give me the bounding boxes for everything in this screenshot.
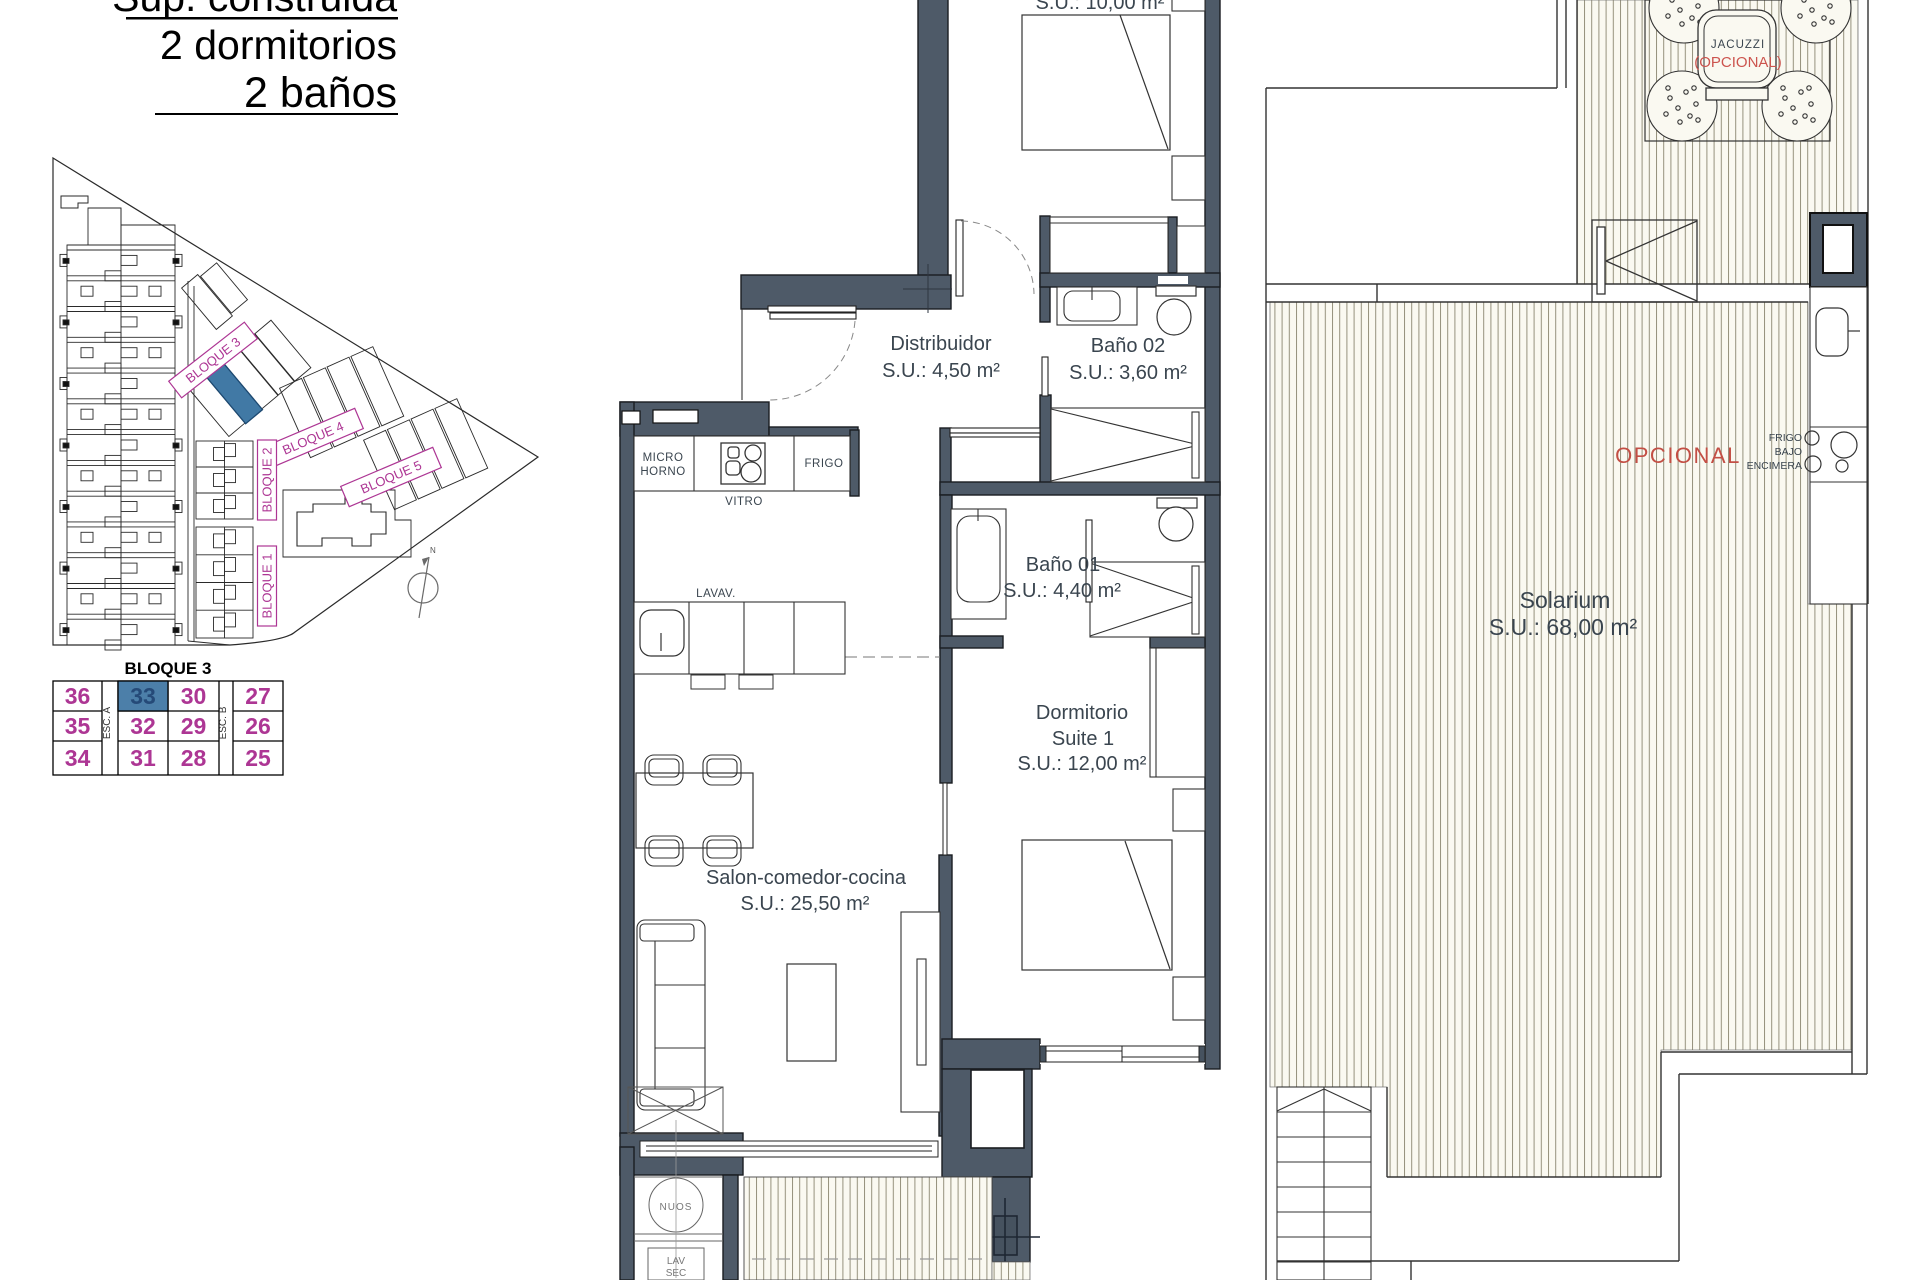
svg-text:BLOQUE 1: BLOQUE 1 — [260, 553, 275, 618]
svg-text:29: 29 — [181, 713, 207, 739]
svg-text:S.U.: 68,00 m²: S.U.: 68,00 m² — [1489, 614, 1638, 640]
svg-text:LAVAV.: LAVAV. — [696, 588, 736, 600]
svg-text:34: 34 — [65, 745, 91, 771]
svg-text:(OPCIONAL): (OPCIONAL) — [1694, 54, 1782, 71]
svg-text:JACUZZI: JACUZZI — [1711, 39, 1765, 51]
svg-text:25: 25 — [245, 745, 271, 771]
svg-text:26: 26 — [245, 713, 271, 739]
svg-text:ESC. B: ESC. B — [218, 706, 229, 739]
svg-text:FRIGO: FRIGO — [805, 458, 844, 470]
svg-text:Baño 01: Baño 01 — [1026, 554, 1101, 576]
svg-text:Solarium: Solarium — [1520, 587, 1611, 613]
svg-text:31: 31 — [130, 745, 156, 771]
svg-text:S.U.: 4,40 m²: S.U.: 4,40 m² — [1003, 580, 1121, 602]
svg-text:Salon-comedor-cocina: Salon-comedor-cocina — [706, 867, 907, 889]
svg-text:FRIGO: FRIGO — [1769, 432, 1802, 444]
svg-text:28: 28 — [181, 745, 207, 771]
svg-text:N: N — [430, 546, 436, 555]
svg-text:32: 32 — [130, 713, 156, 739]
svg-text:BAJO: BAJO — [1775, 446, 1802, 458]
svg-text:S.U.: 10,00 m²: S.U.: 10,00 m² — [1036, 0, 1165, 14]
svg-text:Distribuidor: Distribuidor — [890, 333, 991, 355]
svg-text:Dormitorio: Dormitorio — [1036, 702, 1128, 724]
svg-text:Suite 1: Suite 1 — [1052, 728, 1114, 750]
svg-text:S.U.: 12,00 m²: S.U.: 12,00 m² — [1018, 753, 1147, 775]
svg-text:36: 36 — [65, 683, 91, 709]
svg-text:BLOQUE 2: BLOQUE 2 — [260, 447, 275, 512]
svg-text:2 dormitorios: 2 dormitorios — [160, 22, 397, 68]
svg-text:HORNO: HORNO — [640, 466, 685, 478]
svg-text:S.U.: 3,60 m²: S.U.: 3,60 m² — [1069, 362, 1187, 384]
svg-text:33: 33 — [130, 683, 156, 709]
svg-text:2 baños: 2 baños — [244, 69, 397, 117]
svg-text:BLOQUE 3: BLOQUE 3 — [125, 659, 212, 678]
svg-text:30: 30 — [181, 683, 207, 709]
svg-text:MICRO: MICRO — [643, 452, 684, 464]
svg-text:ESC. A: ESC. A — [102, 707, 113, 740]
svg-text:27: 27 — [245, 683, 271, 709]
svg-text:ENCIMERA: ENCIMERA — [1747, 460, 1802, 472]
svg-text:35: 35 — [65, 713, 91, 739]
svg-text:OPCIONAL: OPCIONAL — [1615, 443, 1741, 468]
svg-text:VITRO: VITRO — [725, 496, 763, 508]
svg-text:S.U.: 4,50 m²: S.U.: 4,50 m² — [882, 360, 1000, 382]
svg-text:S.U.: 25,50 m²: S.U.: 25,50 m² — [741, 893, 870, 915]
svg-text:Baño 02: Baño 02 — [1091, 335, 1166, 357]
